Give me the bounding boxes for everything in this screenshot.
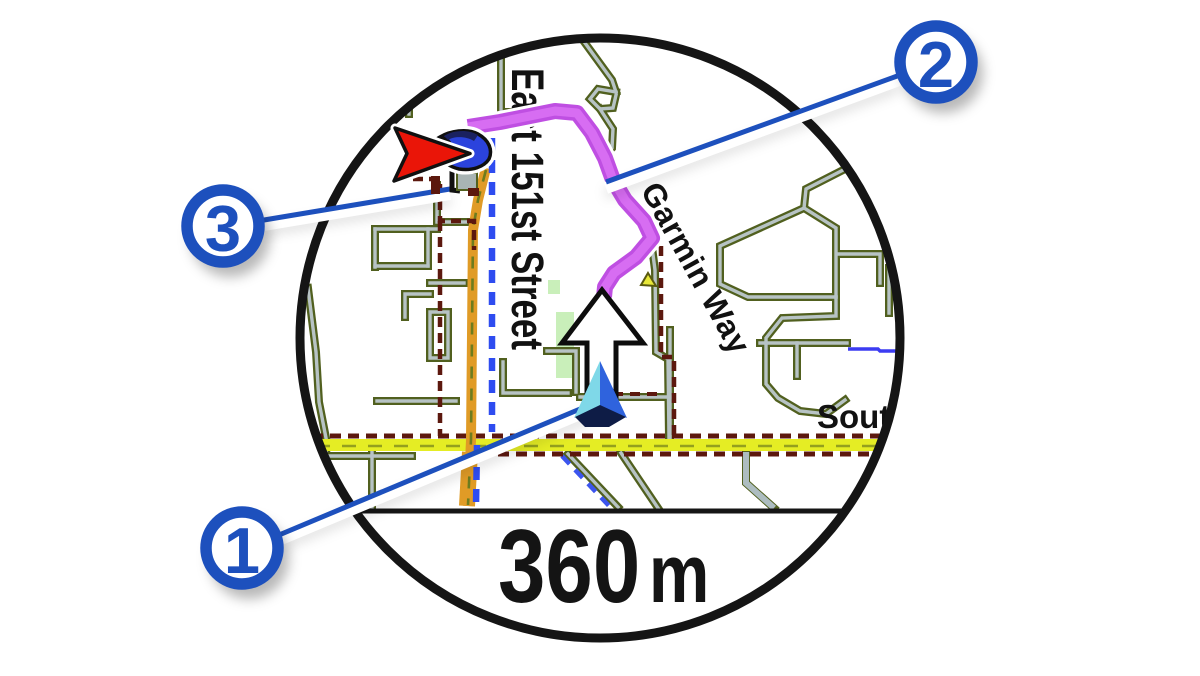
- svg-text:2: 2: [918, 28, 954, 101]
- svg-text:3: 3: [205, 192, 241, 265]
- svg-text:m: m: [649, 528, 710, 621]
- svg-text:360: 360: [498, 509, 640, 625]
- svg-text:1: 1: [224, 514, 260, 587]
